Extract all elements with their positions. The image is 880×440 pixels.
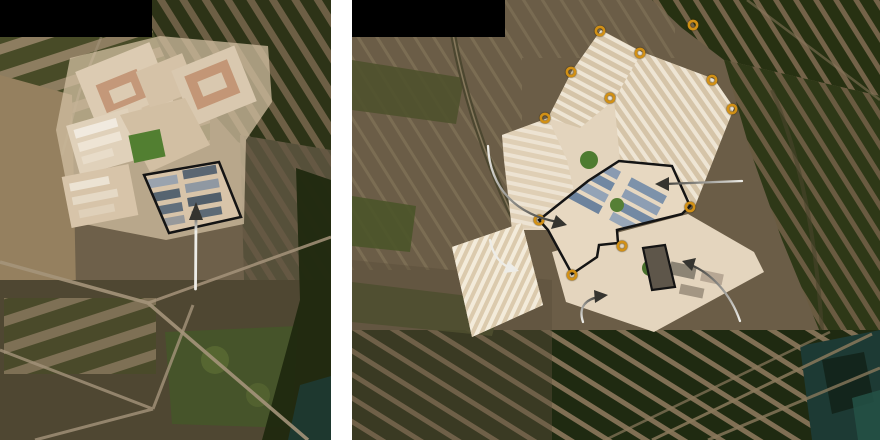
after-satellite-image	[352, 0, 880, 440]
panel-after	[352, 0, 880, 440]
redacted-caption-right	[352, 0, 505, 37]
tree-patch	[610, 198, 624, 212]
panel-before	[0, 0, 331, 440]
panel-divider	[331, 0, 352, 440]
tree-patch	[580, 151, 598, 169]
facility-buildings	[56, 36, 272, 240]
pointer-arrow-shaft	[196, 219, 197, 289]
redacted-caption-left	[0, 0, 152, 37]
before-satellite-image	[0, 0, 331, 440]
satellite-comparison-graphic	[0, 0, 880, 440]
